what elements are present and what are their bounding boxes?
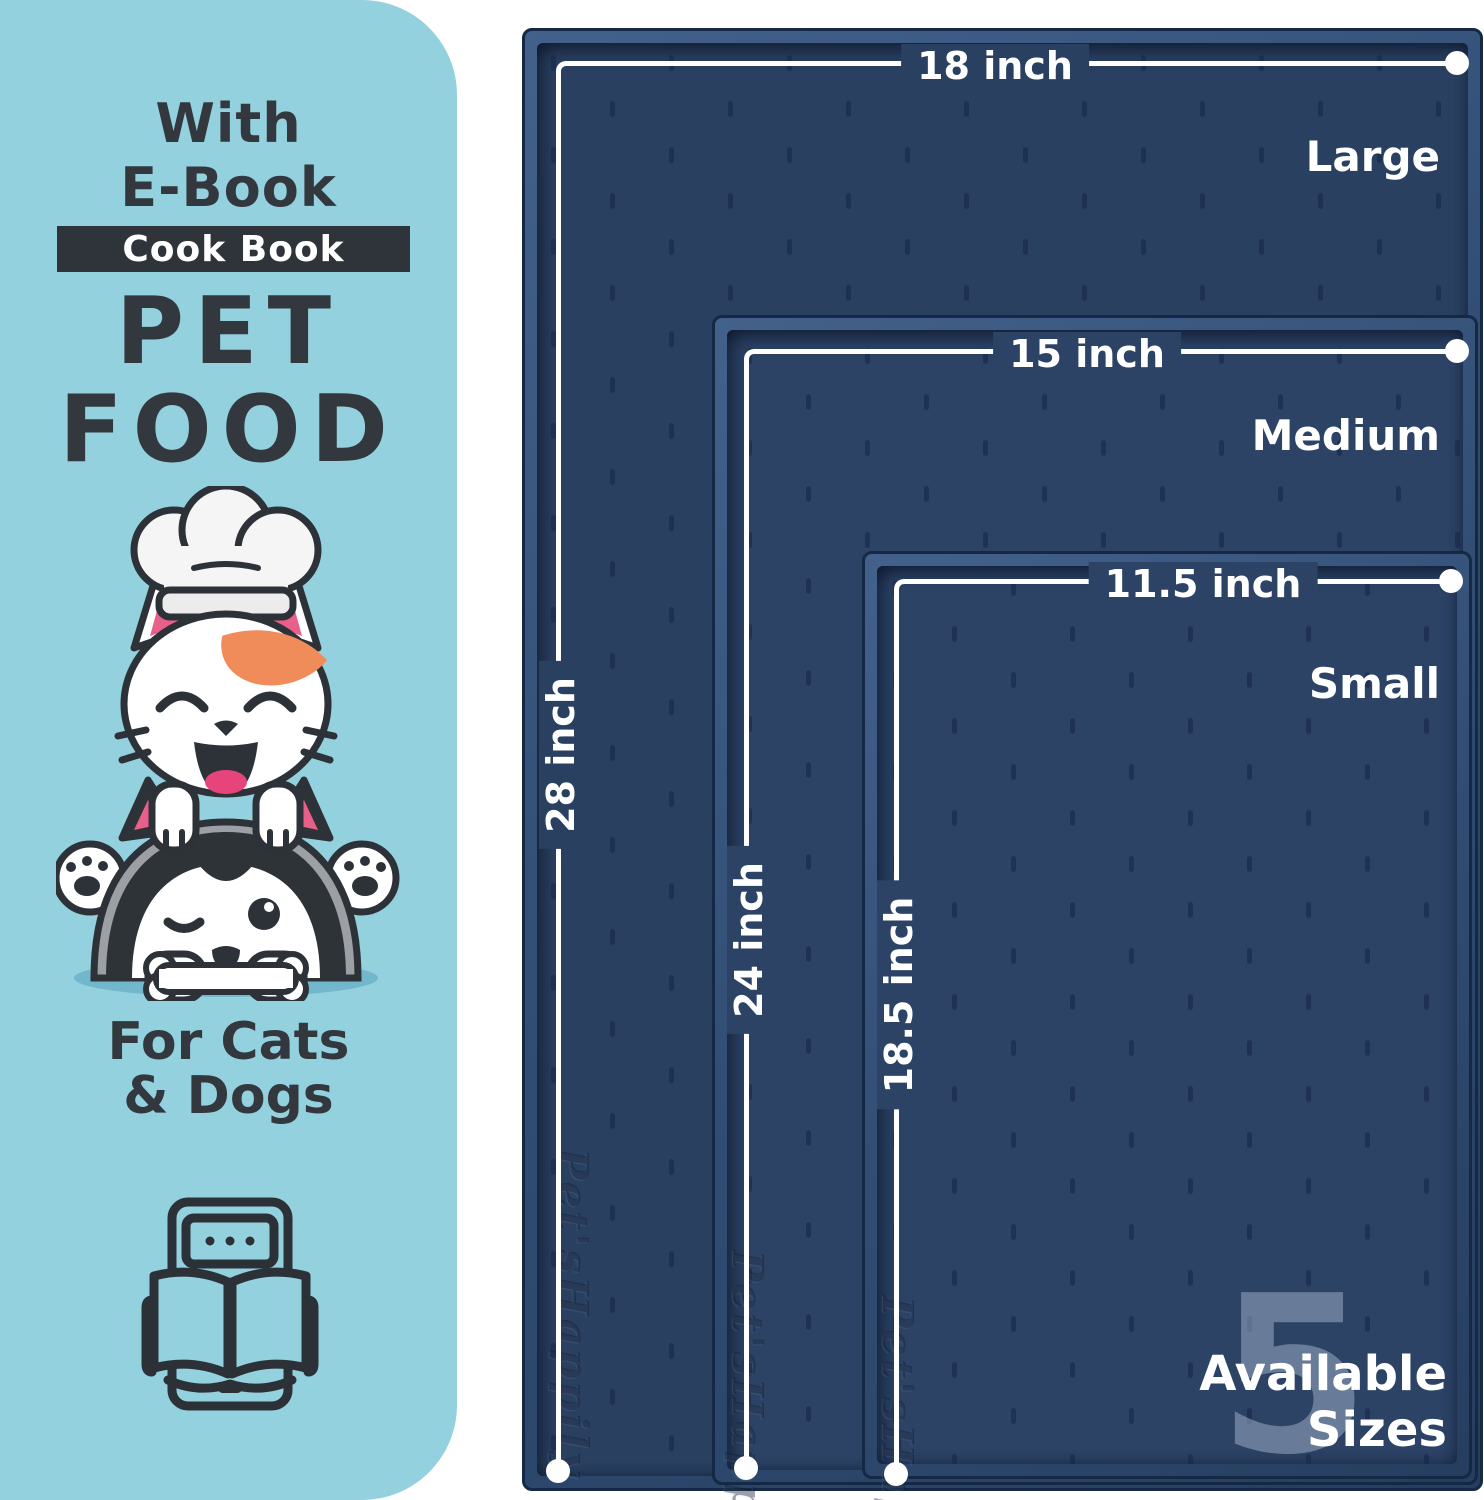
chef-cat-dog-illustration [56,486,400,1001]
available-sizes-line2: Sizes [1307,1402,1447,1458]
height-label-small: 18.5 inch [877,881,921,1110]
measure-dot [884,1462,908,1486]
audience-line1: For Cats [0,1012,457,1072]
measure-dot [734,1456,758,1480]
left-info-panel: With E-Book Cook Book PET FOOD [0,0,457,1500]
measure-dot [1445,339,1469,363]
width-label-small: 11.5 inch [1089,562,1318,606]
ebook-icon [138,1196,322,1414]
audience-line2: & Dogs [0,1066,457,1126]
cookbook-badge: Cook Book [57,226,410,272]
pet-food-mat-product-image: With E-Book Cook Book PET FOOD [0,0,1484,1500]
measure-dot [546,1459,570,1483]
height-label-large: 28 inch [539,661,583,849]
chef-hat [134,486,318,617]
title-food: FOOD [0,380,457,478]
width-label-medium: 15 inch [993,332,1181,376]
size-label-medium: Medium [1252,411,1440,460]
size-label-small: Small [1309,659,1440,708]
ebook-label: E-Book [0,156,457,219]
measure-bracket-small: 11.5 inch 18.5 inch [894,579,1451,1474]
husky-dog [56,780,396,1001]
available-sizes-line1: Available [1199,1346,1447,1402]
with-label: With [0,92,457,155]
width-label-large: 18 inch [901,44,1089,88]
height-label-medium: 24 inch [727,846,771,1034]
measure-dot [1445,51,1469,75]
cat-chef [118,486,351,797]
size-label-large: Large [1306,132,1440,181]
title-pet: PET [0,282,457,380]
measure-dot [1439,569,1463,593]
